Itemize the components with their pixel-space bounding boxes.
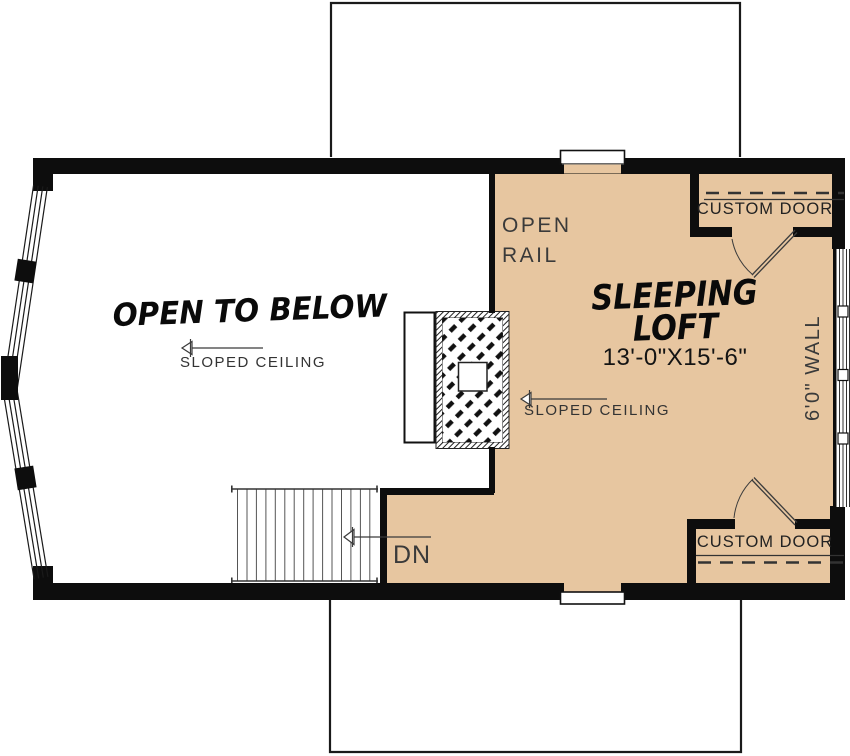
open-rail-label: OPEN RAIL <box>502 211 572 272</box>
closet-bottom-sill-left <box>687 519 735 529</box>
chimney-hearth <box>405 313 435 443</box>
custom-door-label-top: CUSTOM DOOR <box>695 200 835 219</box>
wall-mullion-upper <box>14 259 36 284</box>
floor-plan-drawing <box>0 0 850 756</box>
wall-top <box>37 158 845 174</box>
rail-wall-upper <box>489 160 495 313</box>
chimney-flue <box>459 363 488 392</box>
closet-top-sill-left <box>690 227 732 237</box>
wall-corner-bottom-left <box>33 566 53 600</box>
stair-edge-caps <box>232 486 377 585</box>
chimney <box>405 312 510 449</box>
wall-right-lower <box>830 506 845 600</box>
sloped-ceiling-label-left: SLOPED CEILING <box>180 354 320 371</box>
wall-height-label: 6'0" WALL <box>802 296 824 440</box>
stair-edges <box>231 489 378 581</box>
rail-wall-lower <box>489 447 495 493</box>
sloped-ceiling-label-right: SLOPED CEILING <box>524 402 664 419</box>
wall-mullion-lower <box>14 466 36 491</box>
closet-top-left-wall <box>690 158 699 237</box>
roof-outline-lower <box>330 600 741 752</box>
wall-bottom <box>35 583 845 600</box>
open-rail-line1: OPEN <box>502 211 572 241</box>
stairs-down-label: DN <box>393 541 431 570</box>
staircase <box>231 486 378 585</box>
wall-apex-left <box>1 356 18 400</box>
right-window-wall <box>833 249 850 507</box>
floor-plan: OPEN TO BELOW SLOPED CEILING OPEN RAIL S… <box>0 0 850 756</box>
closet-top-sill-right <box>793 227 838 237</box>
sleeping-loft-dimensions: 13'-0"X15'-6" <box>560 344 790 372</box>
custom-door-label-bottom: CUSTOM DOOR <box>695 533 835 552</box>
bottom-window <box>561 583 625 605</box>
right-window-frame <box>833 249 837 507</box>
sleeping-loft-label: SLEEPING LOFT <box>564 275 787 348</box>
top-window <box>561 151 625 174</box>
roof-outline-upper <box>331 3 740 157</box>
open-rail-line2: RAIL <box>502 241 572 271</box>
loft-floor-edge-wall <box>380 488 494 495</box>
wall-corner-top-left <box>33 158 53 191</box>
